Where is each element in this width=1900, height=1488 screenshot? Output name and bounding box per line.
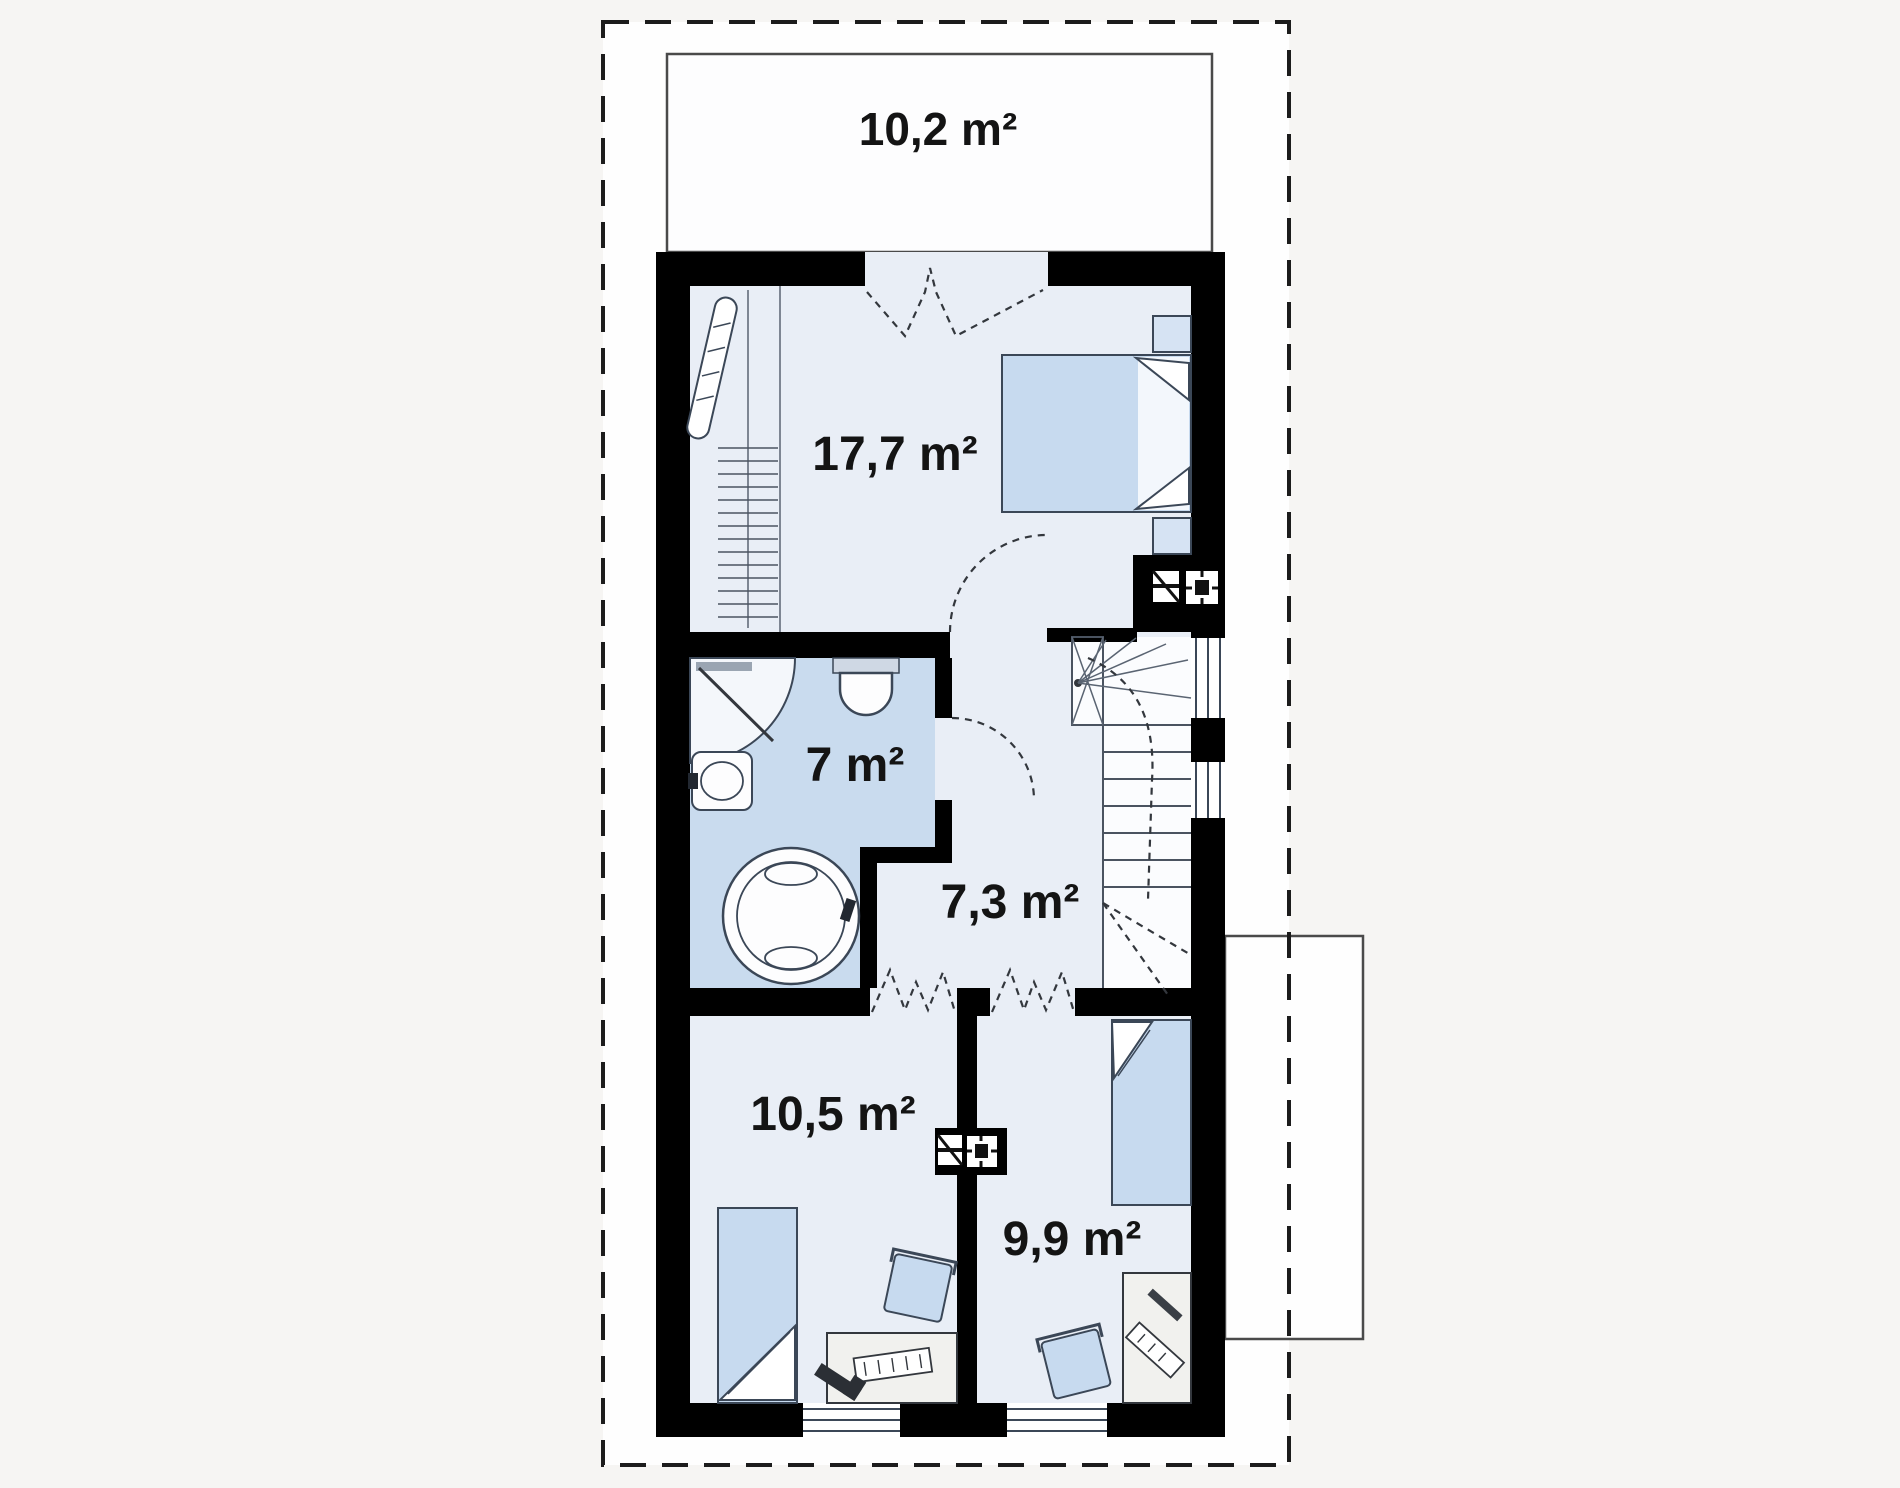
window-right-lower bbox=[1191, 762, 1225, 818]
bedroom-main-area-label: 17,7 m² bbox=[812, 428, 977, 481]
round-bathtub-icon bbox=[723, 848, 859, 984]
washbasin-icon bbox=[688, 752, 752, 810]
floor-plan-page: 10,2 m² bbox=[0, 0, 1900, 1488]
balcony-area-label: 10,2 m² bbox=[859, 103, 1018, 155]
hall-area-label: 7,3 m² bbox=[941, 876, 1080, 929]
ventilation-icon bbox=[967, 1136, 997, 1167]
flue-hatched-icon bbox=[1153, 571, 1179, 602]
single-bed-left bbox=[718, 1208, 797, 1403]
flue-hatched-icon bbox=[938, 1135, 962, 1165]
chimney-bottom bbox=[935, 1128, 1007, 1175]
bedroom-left-area-label: 10,5 m² bbox=[750, 1088, 915, 1141]
nightstand bbox=[1153, 316, 1191, 352]
balcony: 10,2 m² bbox=[667, 54, 1212, 252]
floor-plan-drawing: 10,2 m² bbox=[0, 0, 1900, 1488]
single-bed-right bbox=[1112, 1020, 1191, 1205]
bathroom-area-label: 7 m² bbox=[806, 739, 905, 792]
chimney-top bbox=[1133, 555, 1225, 632]
bedroom-right-area-label: 9,9 m² bbox=[1003, 1213, 1142, 1266]
adjacent-structure-outline bbox=[1225, 936, 1363, 1339]
staircase-floor bbox=[1103, 637, 1191, 988]
window-bottom-right bbox=[1007, 1403, 1107, 1437]
nightstand bbox=[1153, 518, 1191, 554]
window-right-upper bbox=[1191, 638, 1225, 718]
window-bottom-left bbox=[803, 1403, 900, 1437]
desk-right bbox=[1123, 1273, 1191, 1403]
desk-left bbox=[814, 1333, 957, 1403]
ventilation-icon bbox=[1186, 571, 1218, 604]
